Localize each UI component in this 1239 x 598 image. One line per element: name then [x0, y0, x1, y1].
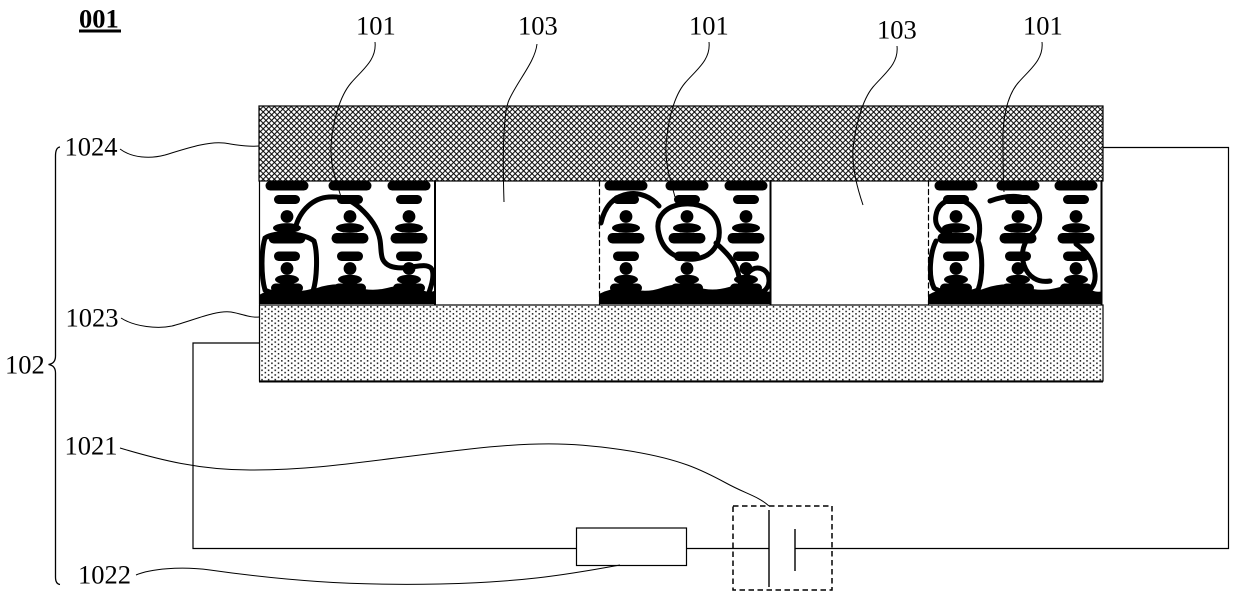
svg-text:101: 101	[689, 11, 729, 41]
svg-text:1024: 1024	[65, 132, 118, 162]
svg-text:103: 103	[518, 11, 558, 41]
svg-text:102: 102	[5, 350, 45, 380]
svg-text:101: 101	[1023, 11, 1063, 41]
svg-text:101: 101	[356, 11, 396, 41]
svg-text:103: 103	[877, 15, 917, 45]
svg-text:1022: 1022	[78, 560, 131, 590]
svg-text:1023: 1023	[66, 303, 119, 333]
svg-text:1021: 1021	[65, 431, 118, 461]
svg-text:001: 001	[79, 4, 119, 34]
